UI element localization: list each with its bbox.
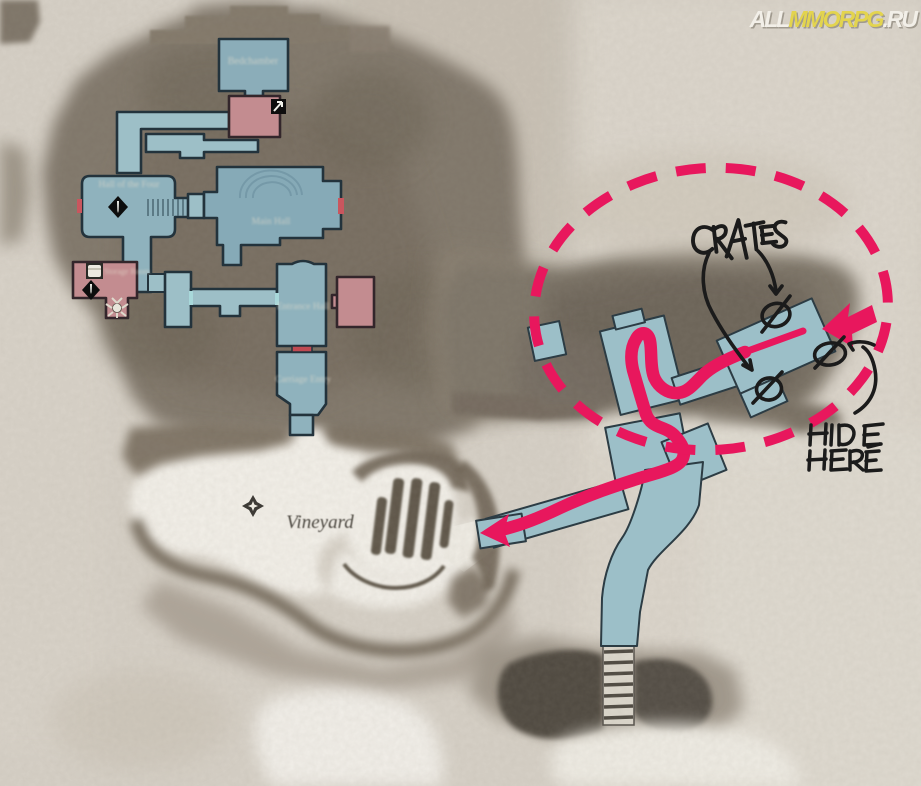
svg-text:Carriage Entry: Carriage Entry bbox=[275, 375, 331, 385]
svg-text:Bedchamber: Bedchamber bbox=[228, 56, 279, 67]
svg-text:Hall of the Four: Hall of the Four bbox=[99, 179, 161, 190]
svg-text:Storage Room: Storage Room bbox=[104, 267, 151, 276]
svg-text:ALLMMORPG.RU: ALLMMORPG.RU bbox=[749, 6, 920, 32]
svg-text:Main Hall: Main Hall bbox=[252, 217, 291, 227]
svg-text:Vineyard: Vineyard bbox=[286, 512, 354, 533]
svg-text:Entrance Hall: Entrance Hall bbox=[277, 302, 330, 312]
